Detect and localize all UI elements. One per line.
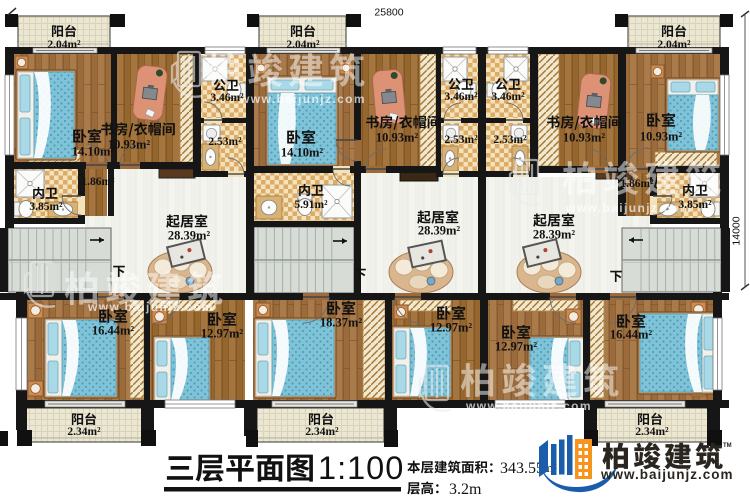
svg-text:2.34m²: 2.34m² — [635, 426, 669, 438]
svg-text:2.53m²: 2.53m² — [493, 134, 527, 146]
svg-text:TM: TM — [723, 443, 732, 449]
svg-text:2.34m²: 2.34m² — [67, 426, 101, 438]
svg-text:3.85m²: 3.85m² — [678, 199, 712, 211]
svg-text:1.86m²: 1.86m² — [81, 176, 115, 188]
svg-text:12.97m²: 12.97m² — [430, 320, 473, 334]
svg-text:www.baijunjz.com: www.baijunjz.com — [565, 201, 692, 215]
svg-text:2.53m²: 2.53m² — [208, 136, 242, 148]
svg-text:28.39m²: 28.39m² — [168, 228, 211, 242]
svg-text:2.04m²: 2.04m² — [47, 39, 81, 51]
svg-text:3.2m: 3.2m — [449, 481, 482, 498]
svg-text:28.39m²: 28.39m² — [418, 223, 461, 237]
svg-text:1:100: 1:100 — [318, 450, 404, 486]
svg-text:14.10m²: 14.10m² — [281, 145, 324, 159]
svg-text:3.46m²: 3.46m² — [491, 91, 525, 103]
svg-text:3.46m²: 3.46m² — [210, 92, 244, 104]
svg-text:16.44m²: 16.44m² — [92, 323, 135, 337]
svg-text:2.53m²: 2.53m² — [444, 134, 478, 146]
svg-text:www.baijunjz.com: www.baijunjz.com — [600, 467, 734, 482]
svg-text:25800: 25800 — [374, 7, 403, 19]
svg-text:www.baijunjz.com: www.baijunjz.com — [239, 92, 366, 106]
svg-text:3.46m²: 3.46m² — [444, 91, 478, 103]
svg-text:www.baijunjz.com: www.baijunjz.com — [87, 300, 214, 314]
svg-text:12.97m²: 12.97m² — [495, 339, 538, 353]
svg-text:10.93m²: 10.93m² — [108, 137, 151, 151]
svg-text:2.04m²: 2.04m² — [286, 39, 320, 51]
svg-text:3.85m²: 3.85m² — [29, 201, 63, 213]
svg-text:1.86m²: 1.86m² — [620, 178, 654, 190]
svg-text:343.55: 343.55 — [500, 460, 544, 477]
svg-text:12.97m²: 12.97m² — [201, 326, 244, 340]
svg-text:www.baijunjz.com: www.baijunjz.com — [465, 399, 592, 413]
svg-text:16.44m²: 16.44m² — [610, 327, 653, 341]
svg-text:28.39m²: 28.39m² — [533, 227, 576, 241]
svg-text:2.34m²: 2.34m² — [305, 426, 339, 438]
svg-text:14000: 14000 — [731, 216, 743, 245]
svg-text:10.93m²: 10.93m² — [640, 129, 683, 143]
svg-text:10.93m²: 10.93m² — [563, 130, 606, 144]
svg-text:18.37m²: 18.37m² — [320, 315, 363, 329]
svg-text:2.04m²: 2.04m² — [657, 39, 691, 51]
svg-text:5.91m²: 5.91m² — [294, 199, 328, 211]
svg-text:10.93m²: 10.93m² — [376, 130, 419, 144]
